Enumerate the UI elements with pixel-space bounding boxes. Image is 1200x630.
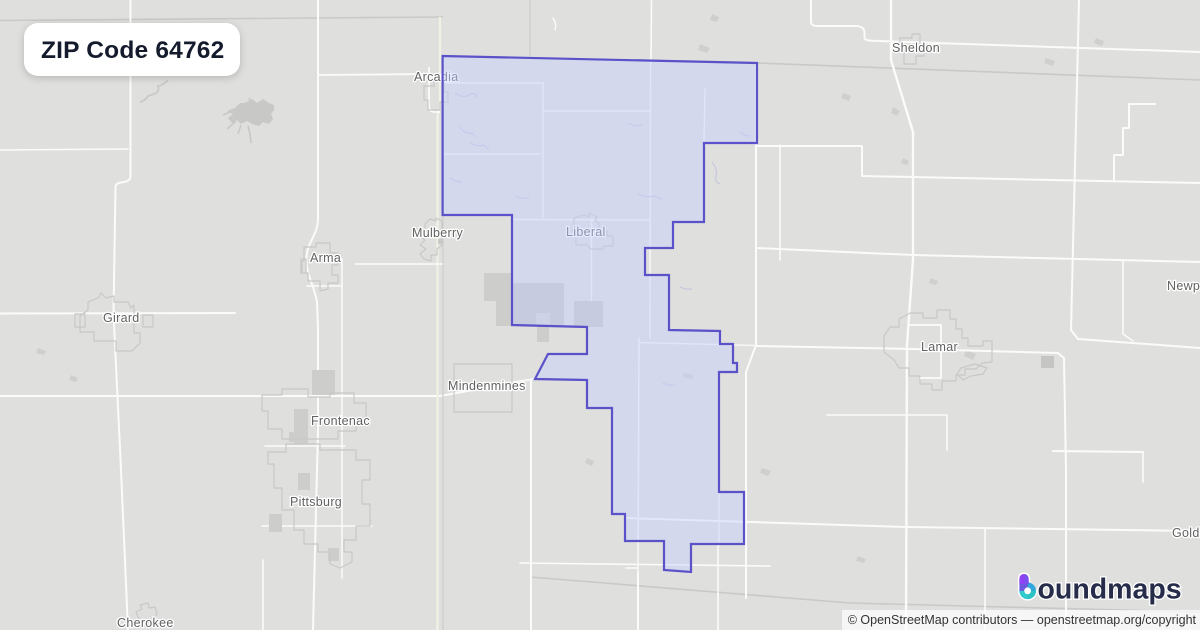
svg-text:Cherokee: Cherokee	[117, 616, 174, 630]
svg-text:Golden City: Golden City	[1172, 526, 1200, 540]
svg-text:Arma: Arma	[310, 251, 341, 265]
svg-text:Sheldon: Sheldon	[892, 41, 940, 55]
svg-text:Girard: Girard	[103, 311, 140, 325]
svg-text:Mulberry: Mulberry	[412, 226, 463, 240]
svg-text:oundmaps: oundmaps	[1038, 574, 1182, 606]
svg-text:Lamar: Lamar	[921, 340, 958, 354]
svg-text:Frontenac: Frontenac	[311, 414, 370, 428]
svg-text:Mindenmines: Mindenmines	[448, 379, 526, 393]
svg-text:Newport: Newport	[1167, 279, 1200, 293]
svg-text:Pittsburg: Pittsburg	[290, 495, 342, 509]
